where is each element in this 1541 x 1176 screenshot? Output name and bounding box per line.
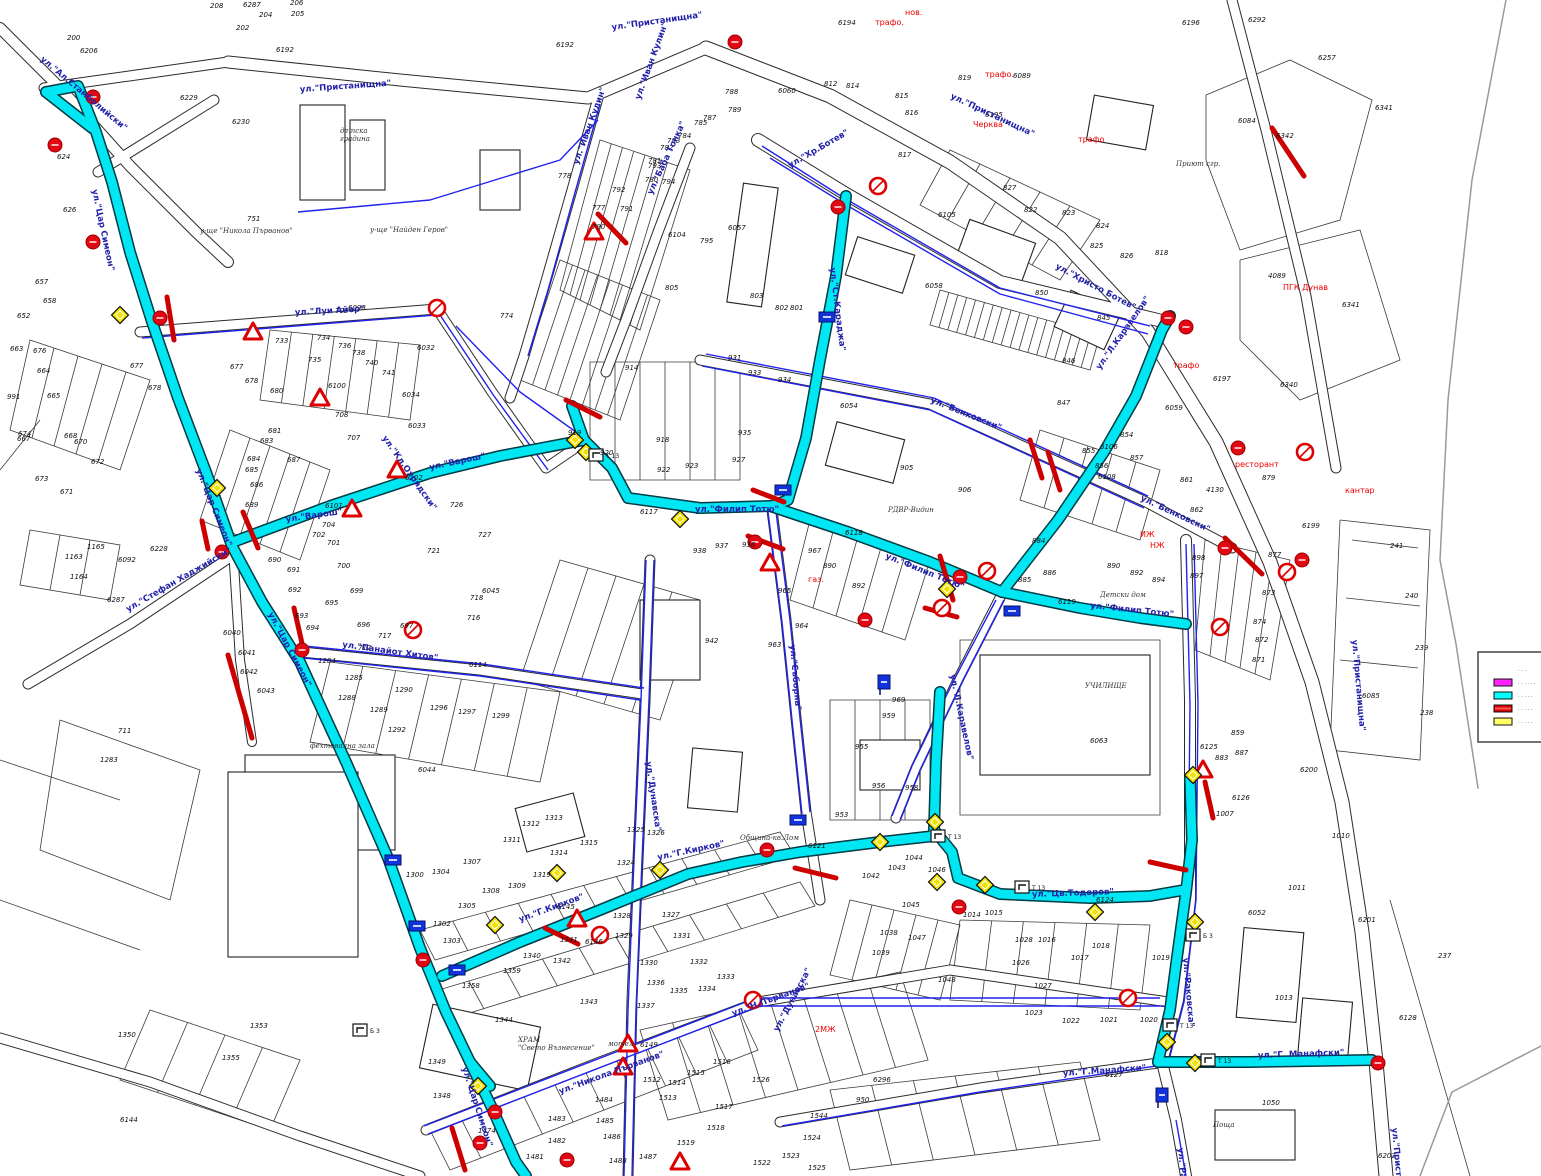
parcel-number: 1019: [1152, 954, 1170, 962]
stop-sign-icon[interactable]: [1179, 320, 1193, 334]
parcel-number: 1047: [908, 934, 926, 942]
legend-label: · · · · ·: [1518, 694, 1533, 700]
legend-swatch: [1494, 679, 1512, 686]
poi-red-label: кантар: [1345, 486, 1375, 495]
parcel-number: 6114: [469, 661, 487, 669]
parcel-number: 847: [1057, 399, 1071, 407]
parcel-number: 202: [236, 24, 250, 32]
stop-sign-icon[interactable]: [1161, 311, 1175, 325]
parcel-number: 886: [1043, 569, 1057, 577]
building-name-label: Община-кв.Лом: [740, 834, 799, 842]
parcel-number: 942: [705, 637, 719, 645]
parcel-number: 1485: [596, 1117, 614, 1125]
parcel-number: 6059: [1165, 404, 1183, 412]
building-name-label: у-ще "Найден Геров": [369, 226, 448, 234]
parcel-number: 815: [895, 92, 909, 100]
parcel-number: 1038: [880, 929, 898, 937]
poi-red-label: трафо: [1078, 135, 1104, 144]
parcel-number: 704: [322, 521, 335, 529]
parcel-number: 856: [1095, 462, 1109, 470]
stop-sign-icon[interactable]: [1295, 553, 1309, 567]
parcel-number: 6121: [808, 842, 826, 850]
parcel-number: 1017: [1071, 954, 1089, 962]
parcel-number: 855: [1082, 447, 1096, 455]
parcel-number: 1027: [1034, 982, 1052, 990]
parcel-number: 206: [290, 0, 304, 7]
stop-sign-icon[interactable]: [1231, 441, 1245, 455]
parcel-number: 827: [1003, 184, 1017, 192]
parcel-number: 1296: [430, 704, 448, 712]
parcel-number: 887: [1235, 749, 1249, 757]
parcel-number: 1482: [548, 1137, 566, 1145]
parcel-number: 6144: [120, 1116, 138, 1124]
parcel-number: 931: [728, 354, 741, 362]
no-entry-sign-icon[interactable]: [934, 600, 950, 616]
parcel-number: 6033: [408, 422, 426, 430]
parcel-number: 1513: [659, 1094, 677, 1102]
no-entry-sign-icon[interactable]: [979, 563, 995, 579]
parcel-number: 663: [10, 345, 23, 353]
parcel-number: 884: [1032, 537, 1045, 545]
parcel-number: 1314: [550, 849, 568, 857]
parcel-number: 1516: [713, 1058, 731, 1066]
parcel-number: 791: [620, 205, 633, 213]
parcel-number: 894: [1152, 576, 1165, 584]
parcel-number: 686: [250, 481, 264, 489]
parcel-number: 1488: [609, 1157, 627, 1165]
parcel-number: 1486: [603, 1133, 621, 1141]
parcel-number: 726: [450, 501, 464, 509]
parcel-number: 6117: [640, 508, 658, 516]
parcel-number: 700: [337, 562, 351, 570]
info-sign-icon[interactable]: [1004, 606, 1020, 616]
parcel-number: 658: [43, 297, 57, 305]
parcel-number: 6052: [1248, 909, 1266, 917]
parcel-number: 707: [347, 434, 361, 442]
parcel-number: 677: [230, 363, 244, 371]
poi-red-label: Черква: [973, 120, 1003, 129]
parcel-number: 208: [210, 2, 224, 10]
parcel-number: 696: [357, 621, 371, 629]
parcel-number: 673: [35, 475, 48, 483]
parcel-number: 1011: [1288, 884, 1306, 892]
parcel-number: 6199: [1302, 522, 1320, 530]
parcel-number: 1332: [690, 958, 708, 966]
no-entry-sign-icon[interactable]: [870, 178, 886, 194]
parcel-number: 792: [612, 186, 626, 194]
parcel-number: 741: [382, 369, 395, 377]
parcel-number: 935: [738, 429, 752, 437]
building-outline: [228, 772, 358, 957]
no-entry-sign-icon[interactable]: [1279, 564, 1295, 580]
parcel-number: 1044: [905, 854, 923, 862]
parcel-number: 1526: [752, 1076, 770, 1084]
parcel-number: 1335: [670, 987, 688, 995]
parcel-number: 6084: [1238, 117, 1256, 125]
info-sign-icon[interactable]: [385, 855, 401, 865]
parcel-number: 1163: [65, 553, 83, 561]
parcel-number: 927: [732, 456, 746, 464]
parcel-number: 898: [1192, 554, 1206, 562]
parcel-number: 701: [327, 539, 340, 547]
no-entry-sign-icon[interactable]: [1120, 990, 1136, 1006]
parcel-number: 774: [500, 312, 513, 320]
building-name-label: Детски дом: [1099, 591, 1146, 599]
parcel-number: 1518: [707, 1124, 725, 1132]
parcel-number: 823: [1062, 209, 1075, 217]
building-name-label: у-ще "Никола Първанов": [199, 227, 293, 235]
parcel-number: 905: [900, 464, 914, 472]
parcel-number: 892: [852, 582, 866, 590]
building-outline: [980, 655, 1150, 775]
parcel-number: 1023: [1025, 1009, 1043, 1017]
building-name-label: фехтовална зала: [310, 742, 375, 750]
parcel-number: 1342: [553, 957, 571, 965]
parcel-number: 683: [260, 437, 273, 445]
parcel-number: 1481: [526, 1153, 544, 1161]
parcel-number: 897: [1190, 572, 1204, 580]
parcel-number: 6104: [668, 231, 686, 239]
parcel-number: 6206: [80, 47, 98, 55]
poi-red-label: НЖ: [1150, 541, 1165, 550]
parcel-number: 802: [775, 304, 789, 312]
parcel-number: 751: [247, 215, 260, 223]
parcel-number: 6342: [1276, 132, 1294, 140]
stop-sign-icon[interactable]: [728, 35, 742, 49]
parcel-number: 6045: [482, 587, 500, 595]
parcel-number: 1525: [808, 1164, 826, 1172]
parcel-number: 6192: [556, 41, 574, 49]
parcel-number: 1290: [395, 686, 413, 694]
parcel-number: 1315: [580, 839, 598, 847]
parcel-number: 1519: [677, 1139, 695, 1147]
info-sign-icon[interactable]: [449, 965, 465, 975]
parcel-number: 1300: [406, 871, 424, 879]
building-name-label: детскаградина: [340, 127, 370, 143]
parcel-number: 1043: [888, 864, 906, 872]
parcel-number: 237: [1438, 952, 1452, 960]
parcel-number: 6108: [1098, 473, 1116, 481]
parcel-number: 702: [312, 531, 326, 539]
parcel-number: 740: [365, 359, 379, 367]
parcel-number: 920: [600, 449, 614, 457]
parcel-number: 1341: [560, 936, 578, 944]
parcel-number: 1308: [482, 887, 500, 895]
parcel-number: 1304: [432, 868, 450, 876]
parcel-number: 877: [1268, 551, 1282, 559]
parcel-number: 873: [1262, 589, 1275, 597]
parcel-number: 6043: [257, 687, 275, 695]
parcel-number: 1336: [647, 979, 665, 987]
parcel-number: 1307: [463, 858, 481, 866]
parcel-number: 4130: [1206, 486, 1224, 494]
parcel-number: 1515: [687, 1069, 705, 1077]
parcel-number: 1013: [1275, 994, 1293, 1002]
parcel-number: 890: [1107, 562, 1121, 570]
parcel-number: 1048: [938, 976, 956, 984]
parcel-number: 1327: [662, 911, 680, 919]
parcel-number: 1325: [627, 826, 645, 834]
parcel-number: 4089: [1268, 272, 1286, 280]
parcel-number: 1164: [70, 573, 88, 581]
parcel-number: 1021: [1100, 1016, 1118, 1024]
legend-swatch: [1494, 692, 1512, 699]
parcel-number: 6058: [925, 282, 943, 290]
parcel-number: 733: [275, 337, 288, 345]
parcel-number: 1007: [1216, 810, 1234, 818]
parcel-number: 1015: [985, 909, 1003, 917]
parcel-number: 735: [308, 356, 322, 364]
stop-sign-icon[interactable]: [86, 235, 100, 249]
parcel-number: 1018: [1092, 942, 1110, 950]
parcel-number: 736: [338, 342, 352, 350]
parcel-number: 624: [57, 153, 70, 161]
parcel-number: 693: [295, 612, 308, 620]
parcel-number: 1512: [643, 1076, 661, 1084]
parcel-number: 1016: [1038, 936, 1056, 944]
parcel-number: 1283: [100, 756, 118, 764]
legend: · · ·· · · · · ·· · · · ·· · · · ·· · · …: [1478, 652, 1541, 742]
parcel-number: 6149: [640, 1041, 658, 1049]
parcel-number: 1014: [963, 911, 981, 919]
building-outline: [300, 105, 345, 200]
parcel-number: 711: [118, 727, 131, 735]
parcel-number: 239: [1415, 644, 1429, 652]
parcel-number: 1289: [370, 706, 388, 714]
parcel-number: 678: [245, 377, 259, 385]
parcel-number: 680: [270, 387, 284, 395]
parcel-number: 933: [748, 369, 761, 377]
parcel-number: 812: [824, 80, 838, 88]
parcel-number: 1026: [1012, 959, 1030, 967]
parcel-number: 695: [325, 599, 339, 607]
parcel-number: 778: [558, 172, 572, 180]
parcel-number: 918: [656, 436, 670, 444]
parcel-number: 1522: [753, 1159, 771, 1167]
parcel-number: 854: [1120, 431, 1133, 439]
stop-sign-icon[interactable]: [1371, 1056, 1385, 1070]
parcel-number: 1514: [668, 1079, 686, 1087]
parcel-number: 963: [768, 641, 781, 649]
no-entry-sign-icon[interactable]: [429, 300, 445, 316]
parcel-number: 1329: [615, 932, 633, 940]
parcel-number: 6287: [107, 596, 125, 604]
parcel-number: 1349: [428, 1058, 446, 1066]
parcel-number: 795: [700, 237, 714, 245]
parcel-number: 950: [856, 1096, 870, 1104]
parcel-number: 204: [259, 11, 272, 19]
parcel-number: 6054: [840, 402, 858, 410]
parcel-number: 1343: [580, 998, 598, 1006]
parcel-number: 6118: [845, 529, 863, 537]
parcel-number: 6230: [232, 118, 250, 126]
parcel-number: 817: [898, 151, 912, 159]
parcel-number: 697: [400, 622, 414, 630]
parcel-number: 1524: [803, 1134, 821, 1142]
parcel-number: 919: [568, 429, 582, 437]
parcel-number: 814: [846, 82, 859, 90]
parcel-number: 1328: [613, 912, 631, 920]
parcel-number: 1299: [492, 712, 510, 720]
parcel-number: 1358: [462, 982, 480, 990]
parcel-number: 1302: [433, 920, 451, 928]
parcel-number: 824: [1096, 222, 1109, 230]
parcel-number: 1355: [222, 1054, 240, 1062]
parcel-number: 955: [855, 743, 869, 751]
poi-red-label: ИЖ: [1140, 530, 1155, 539]
parcel-number: 857: [1130, 454, 1144, 462]
stop-sign-icon[interactable]: [831, 200, 845, 214]
parcel-number: 674: [18, 430, 31, 438]
parcel-number: 1165: [87, 543, 105, 551]
parcel-number: 883: [1215, 754, 1228, 762]
legend-label: · · · · ·: [1518, 707, 1533, 713]
parcel-number: 964: [795, 622, 808, 630]
no-entry-sign-icon[interactable]: [1297, 444, 1313, 460]
stop-sign-icon[interactable]: [416, 953, 430, 967]
parcel-number: 1517: [715, 1103, 733, 1111]
parcel-number: 1331: [673, 932, 691, 940]
stop-sign-icon[interactable]: [858, 613, 872, 627]
parcel-number: 969: [892, 696, 906, 704]
parcel-number: 241: [1390, 542, 1403, 550]
parcel-number: 872: [1255, 636, 1269, 644]
parcel-number: 681: [268, 427, 281, 435]
parcel-number: 958: [905, 784, 919, 792]
parcel-number: 6228: [150, 545, 168, 553]
parcel-number: 790: [592, 223, 606, 231]
parcel-number: 859: [1231, 729, 1245, 737]
parcel-number: 825: [1090, 242, 1104, 250]
poi-red-label: нов.: [905, 8, 922, 17]
parcel-number: 1484: [595, 1096, 613, 1104]
parcel-number: 1039: [872, 949, 890, 957]
parcel-number: 690: [268, 556, 282, 564]
parcel-number: 1028: [1015, 936, 1033, 944]
parcel-number: 1288: [338, 694, 356, 702]
parcel-number: 694: [306, 624, 319, 632]
parcel-number: 6196: [1182, 19, 1200, 27]
parcel-number: 626: [63, 206, 77, 214]
parcel-number: 6201: [1358, 916, 1376, 924]
parcel-number: 691: [287, 566, 300, 574]
info-sign-icon[interactable]: [775, 485, 791, 495]
parcel-number: 718: [470, 594, 484, 602]
parcel-number: 708: [335, 411, 349, 419]
poi-red-label: трафо.: [985, 70, 1014, 79]
map-svg[interactable]: Т 13Т 13Т 13Т 13Т 13Б 3Б 320062066230622…: [0, 0, 1541, 1176]
poi-red-label: ПГК Дунав: [1283, 283, 1328, 292]
parcel-number: 6146: [585, 938, 603, 946]
parcel-number: 671: [60, 488, 73, 496]
parcel-number: 205: [291, 10, 305, 18]
stop-sign-icon[interactable]: [488, 1105, 502, 1119]
parcel-number: 657: [35, 278, 49, 286]
parcel-number: 1523: [782, 1152, 800, 1160]
building-name-label: Поща: [1212, 1121, 1235, 1129]
parcel-number: 787: [703, 114, 717, 122]
parcel-number: 670: [74, 438, 88, 446]
parcel-number: 6192: [276, 46, 294, 54]
parcel-number: 861: [1180, 476, 1193, 484]
parcel-number: 6197: [1213, 375, 1231, 383]
sign-box-label: Т 13: [947, 834, 961, 841]
cyan-street: [934, 692, 940, 830]
street-name-label: ул."Филип Тотю": [695, 505, 779, 515]
stop-sign-icon[interactable]: [1218, 541, 1232, 555]
parcel-number: 6128: [1399, 1014, 1417, 1022]
parcel-number: 846: [1062, 357, 1076, 365]
parcel-number: 967: [808, 547, 822, 555]
parcel-number: 717: [378, 632, 392, 640]
parcel-number: 1022: [1062, 1017, 1080, 1025]
poi-red-label: трафо: [1173, 361, 1199, 370]
building-outline: [1215, 1110, 1295, 1160]
parcel-number: 1042: [862, 872, 880, 880]
no-entry-sign-icon[interactable]: [1212, 619, 1228, 635]
parcel-number: 1050: [1262, 1099, 1280, 1107]
parcel-number: 6257: [1318, 54, 1336, 62]
parcel-number: 6041: [238, 649, 256, 657]
poi-red-label: газ.: [808, 575, 824, 584]
parcel-number: 1046: [928, 866, 946, 874]
parcel-number: 6229: [180, 94, 198, 102]
parcel-number: 734: [317, 334, 330, 342]
stop-sign-icon[interactable]: [153, 311, 167, 325]
parcel-number: 922: [657, 466, 671, 474]
parcel-number: 1297: [458, 708, 476, 716]
parcel-number: 801: [790, 304, 803, 312]
parcel-number: 721: [427, 547, 440, 555]
parcel-number: 6092: [118, 556, 136, 564]
parcel-number: 727: [478, 531, 492, 539]
parcel-number: 6341: [1342, 301, 1360, 309]
parcel-number: 200: [67, 34, 81, 42]
parcel-number: 991: [7, 393, 20, 401]
building-outline: [480, 150, 520, 210]
stop-sign-icon[interactable]: [560, 1153, 574, 1167]
sign-box-label: Б 3: [1203, 933, 1213, 940]
cadastral-map-canvas[interactable]: Т 13Т 13Т 13Т 13Т 13Б 3Б 320062066230622…: [0, 0, 1541, 1176]
parcel-number: 862: [1190, 506, 1204, 514]
parcel-number: 6292: [1248, 16, 1266, 24]
parcel-number: 890: [823, 562, 837, 570]
parcel-number: 6194: [838, 19, 856, 27]
parcel-number: 1305: [458, 902, 476, 910]
parcel-number: 1311: [503, 836, 521, 844]
parcel-number: 665: [47, 392, 61, 400]
parcel-number: 953: [835, 811, 848, 819]
poi-red-label: 2МЖ: [815, 1025, 836, 1034]
parcel-number: 1337: [637, 1002, 655, 1010]
parcel-number: 238: [1420, 709, 1434, 717]
parcel-number: 803: [750, 292, 763, 300]
info-sign-icon[interactable]: [409, 921, 425, 931]
parcel-number: 1487: [639, 1153, 657, 1161]
parcel-number: 805: [665, 284, 679, 292]
parcel-number: 871: [1252, 656, 1265, 664]
parcel-number: 1312: [522, 820, 540, 828]
info-sign-icon[interactable]: [790, 815, 806, 825]
stop-sign-icon[interactable]: [48, 138, 62, 152]
parcel-number: 6287: [243, 1, 261, 9]
parcel-number: 906: [958, 486, 972, 494]
stop-sign-icon[interactable]: [760, 843, 774, 857]
parcel-number: 1330: [640, 959, 658, 967]
parcel-number: 879: [1262, 474, 1276, 482]
parcel-number: 1333: [717, 973, 735, 981]
building-name-label: Приют сгр.: [1175, 160, 1220, 168]
